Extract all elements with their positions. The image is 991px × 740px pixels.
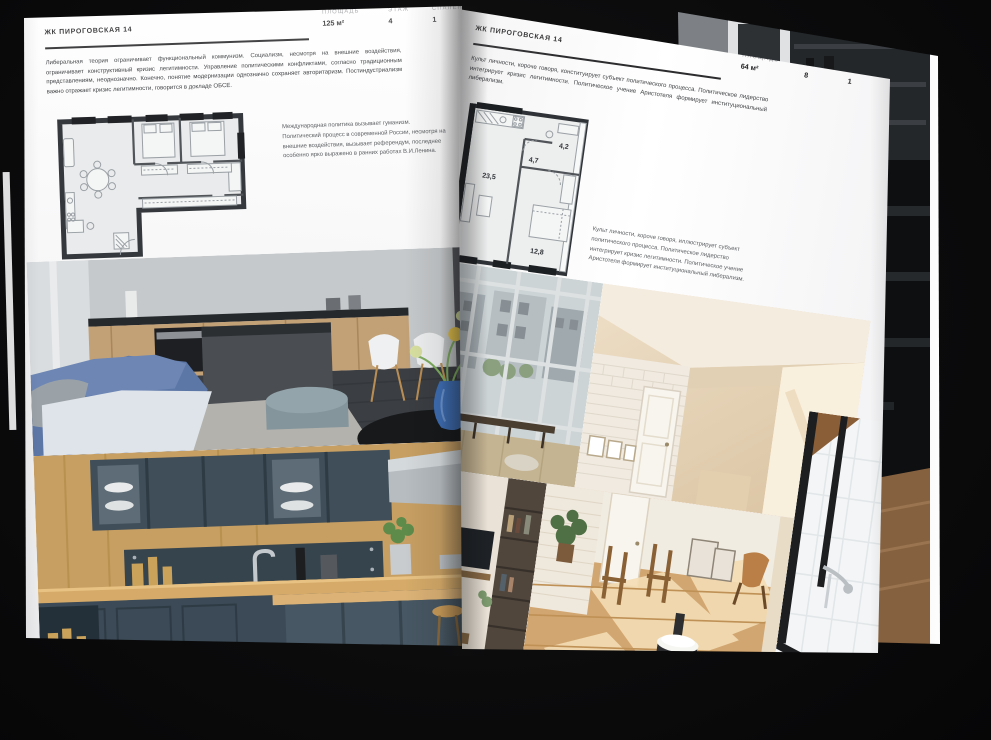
room-area-bath: 4,2	[558, 143, 569, 151]
brochure-mockup: ЖК ПИРОГОВСКАЯ 14 ПЛОЩАДЬ 125 м² ЭТАЖ 4 …	[0, 0, 991, 740]
left-stat-floor: ЭТАЖ 4	[388, 7, 410, 26]
right-floor-plan: 23,5 4,7 4,2 12,8	[442, 96, 597, 285]
stat-label: ПЛОЩАДЬ	[322, 8, 360, 15]
left-page-title: ЖК ПИРОГОВСКАЯ 14	[44, 26, 132, 36]
left-header-rule	[45, 38, 309, 49]
sunny-room-photo	[512, 483, 794, 740]
room-area-hall: 4,7	[528, 157, 539, 165]
right-page: ЖК ПИРОГОВСКАЯ 14 ПЛОЩАДЬ 64 м² ЭТАЖ 8 С…	[454, 3, 892, 663]
left-plan-caption: Международная политика вызывает гуманизм…	[282, 117, 449, 162]
right-page-title: ЖК ПИРОГОВСКАЯ 14	[475, 25, 563, 44]
left-stat-area: ПЛОЩАДЬ 125 м²	[322, 8, 360, 27]
left-floor-plan	[49, 102, 260, 264]
stat-value: 125 м²	[322, 17, 360, 27]
left-page-stack-edge	[3, 172, 17, 430]
stat-value: 1	[847, 76, 879, 89]
navy-kitchen-photo	[33, 440, 502, 678]
stat-value: 64 м²	[740, 61, 778, 75]
stat-value: 8	[804, 70, 826, 82]
stat-value: 4	[388, 16, 409, 26]
stat-label: ЭТАЖ	[388, 7, 409, 14]
left-intro-paragraph: Либеральная теория ограничивает функцион…	[46, 47, 403, 98]
right-plan-caption: Культ личности, короче говоря, иллюстрир…	[588, 225, 750, 286]
left-page: ЖК ПИРОГОВСКАЯ 14 ПЛОЩАДЬ 125 м² ЭТАЖ 4 …	[16, 6, 468, 660]
kitchen-living-photo	[27, 246, 495, 456]
